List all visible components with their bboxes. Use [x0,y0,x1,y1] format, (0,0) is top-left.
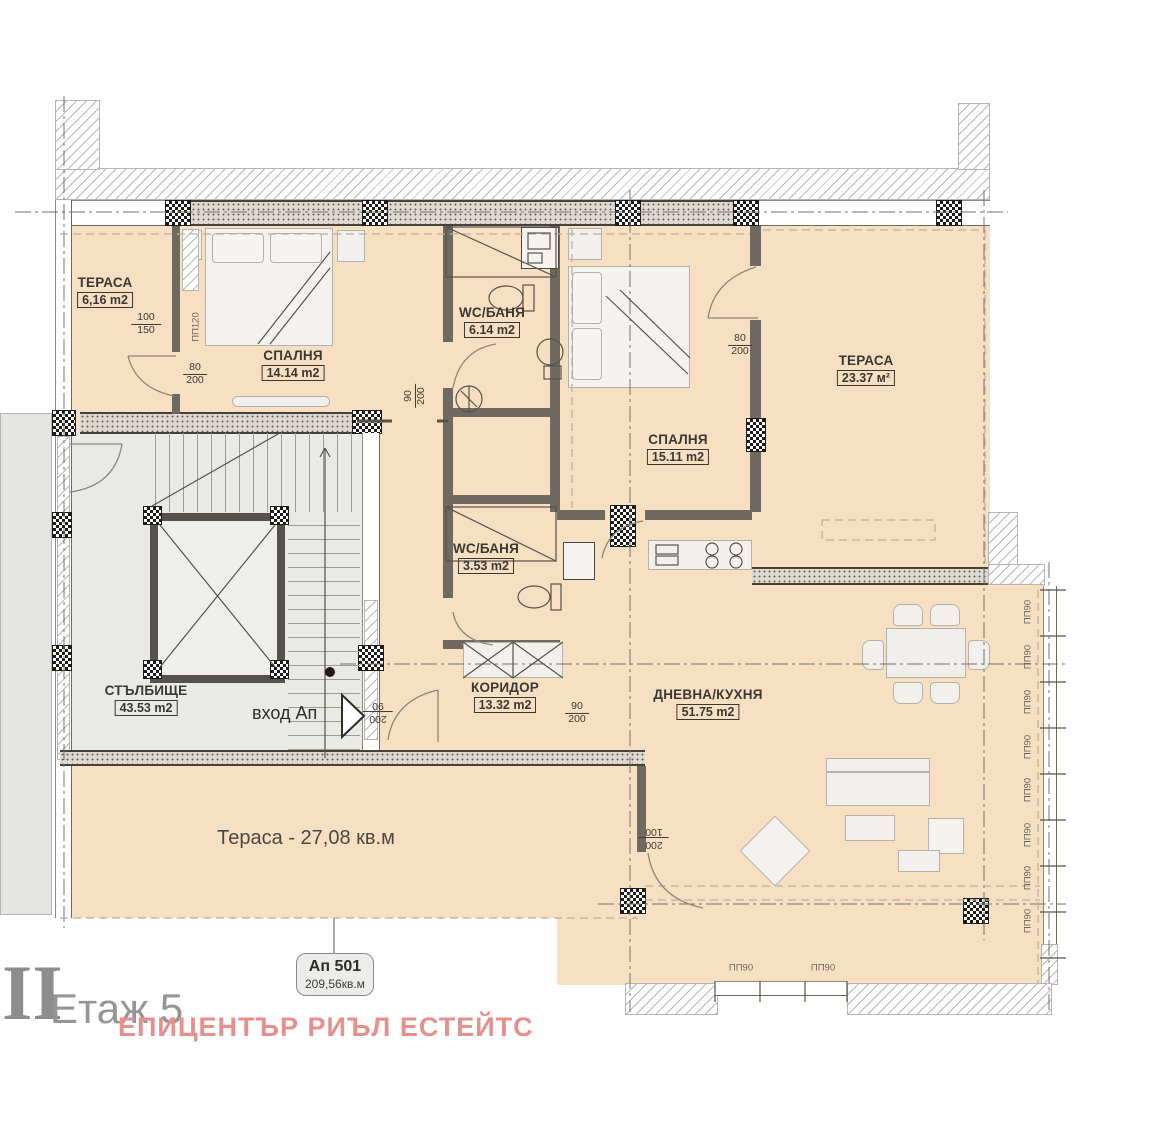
dimension-200-100: 200100 [639,826,669,850]
agency-watermark: ЕПИЦЕНТЪР РИЪЛ ЕСТЕЙТС [118,1012,534,1043]
window-label-bottom-2: ПП90 [811,963,835,974]
linework-overlay [0,0,1170,1133]
terrace-bottom-label: Тераса - 27,08 кв.м [217,827,395,850]
apartment-area: 209,56кв.м [305,977,365,991]
window-label-right-6: ПП90 [1023,823,1034,847]
window-label-bottom-1: ПП90 [729,963,753,974]
dimension-100-150: 100150 [131,312,161,336]
dimension-200-90: 20090 [363,700,393,724]
entrance-label: вход Ап [252,703,317,724]
window-label-right-8: ПП90 [1023,909,1034,933]
room-label-corridor: КОРИДОР 13.32 m2 [471,680,539,714]
room-label-bath-1: WC/БАНЯ 6.14 m2 [459,305,525,339]
room-label-bedroom-1: СПАЛНЯ 14.14 m2 [262,348,325,382]
apartment-id: Ап 501 [305,958,365,976]
window-label-right-3: ПП90 [1023,690,1034,714]
window-label-right-4: ПП90 [1023,735,1034,759]
dimension-90-200-a: 90200 [403,384,427,408]
dimension-80-200-a: 80200 [183,362,207,386]
room-label-terrace-right: ТЕРАСА 23.37 м² [837,353,895,387]
dimension-90-200-b: 90200 [565,701,589,725]
window-label-pp120: ПП120 [191,312,202,342]
window-label-right-1: ПП90 [1023,600,1034,624]
room-label-living-kitchen: ДНЕВНА/КУХНЯ 51.75 m2 [653,687,762,721]
room-label-staircase: СТЪЛБИЩЕ 43.53 m2 [105,683,188,717]
floorplan-canvas: ТЕРАСА 6,16 m2 СПАЛНЯ 14.14 m2 WC/БАНЯ 6… [0,0,1170,1133]
window-label-right-2: ПП90 [1023,645,1034,669]
room-label-bath-2: WC/БАНЯ 3.53 m2 [453,541,519,575]
dimension-80-200-b: 80200 [728,333,752,357]
apartment-tag: Ап 501 209,56кв.м [296,953,374,996]
window-label-right-7: ПП90 [1023,866,1034,890]
room-label-terrace-left: ТЕРАСА 6,16 m2 [77,275,133,309]
window-label-right-5: ПП90 [1023,778,1034,802]
room-label-bedroom-2: СПАЛНЯ 15.11 m2 [647,432,709,466]
